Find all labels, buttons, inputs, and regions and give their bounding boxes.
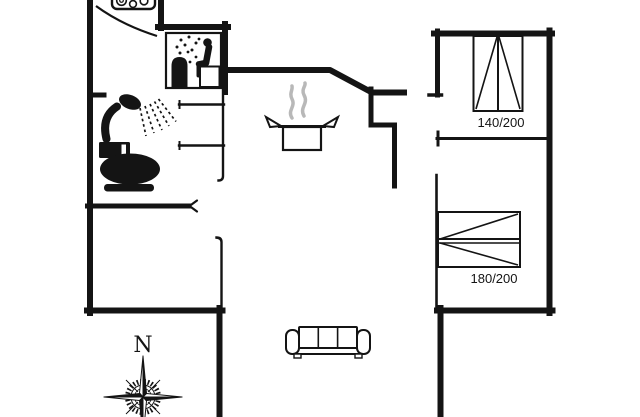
stove-burner <box>140 0 148 5</box>
sofa-arm-left <box>286 330 299 354</box>
wall-top-main <box>222 70 404 93</box>
door-swing-arc <box>96 6 157 36</box>
shower-handle <box>105 107 117 140</box>
sofa-arm-right <box>357 330 370 354</box>
compass-rose-icon: N <box>104 333 182 417</box>
toilet-icon <box>97 142 160 192</box>
bath-door-marker <box>190 201 198 212</box>
pot-body <box>283 127 321 150</box>
sofa-back <box>299 327 357 348</box>
stove-burner <box>130 1 137 8</box>
stove-icon <box>112 0 155 9</box>
floor-plan: 140/200 180/200 N <box>0 0 640 417</box>
wall-hall-upper <box>217 238 222 311</box>
steam-wisp <box>290 86 293 118</box>
shower-head <box>117 91 144 113</box>
toilet-base <box>104 184 154 192</box>
compass-cardinal-points <box>104 356 182 417</box>
pot-handle-right <box>323 117 338 127</box>
sofa-foot <box>355 354 362 358</box>
sauna-icon <box>166 33 221 88</box>
wall-kitchen-hall <box>371 89 395 186</box>
stove-burner <box>120 0 124 2</box>
toilet-bowl <box>100 154 160 185</box>
sofa-front-rail <box>296 348 360 354</box>
bed-double-140-icon <box>474 36 523 111</box>
pot-handle-left <box>266 117 281 127</box>
floorplan-canvas: 140/200 180/200 N <box>0 0 640 417</box>
steam-wisp <box>303 83 306 116</box>
sauna-bench <box>200 67 220 88</box>
sofa-foot <box>294 354 301 358</box>
bed-double-180-icon <box>438 212 520 267</box>
sofa-icon <box>286 327 370 358</box>
cooking-pot-icon <box>266 83 338 150</box>
bed-size-label: 140/200 <box>478 115 525 130</box>
bed-size-label: 180/200 <box>471 271 518 286</box>
shower-icon <box>105 91 176 139</box>
sauna-heater <box>172 57 188 87</box>
shower-spray <box>140 99 176 136</box>
compass-north-label: N <box>133 333 152 358</box>
